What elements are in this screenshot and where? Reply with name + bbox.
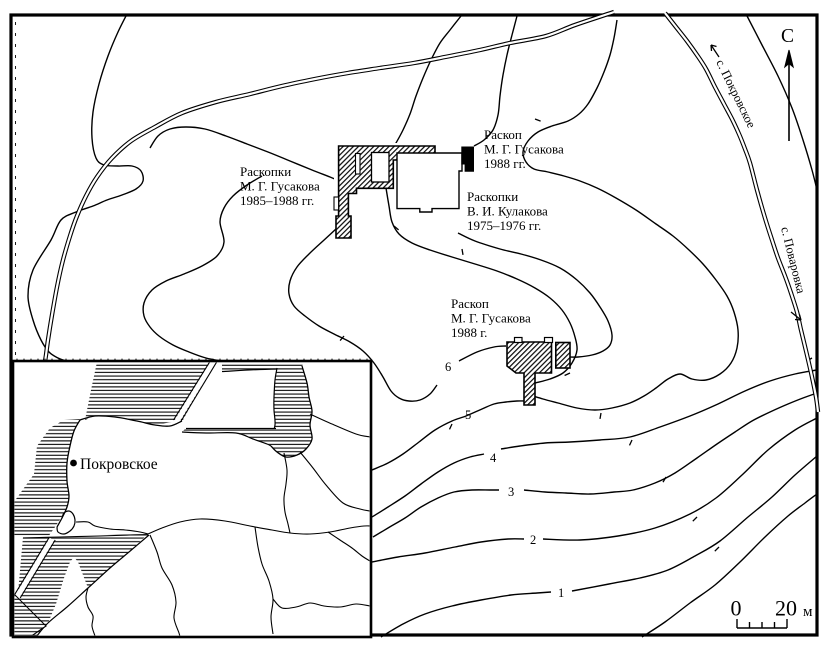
svg-text:1988 гг.: 1988 гг. <box>484 156 526 171</box>
svg-text:20: 20 <box>775 596 797 621</box>
svg-text:Раскопки: Раскопки <box>467 189 518 204</box>
svg-text:С: С <box>781 26 794 47</box>
svg-text:Раскопки: Раскопки <box>240 164 291 179</box>
svg-text:3: 3 <box>508 485 514 499</box>
svg-text:2: 2 <box>530 533 536 547</box>
svg-text:1985–1988 гг.: 1985–1988 гг. <box>240 193 314 208</box>
svg-text:5: 5 <box>465 408 471 422</box>
svg-text:М. Г. Гусакова: М. Г. Гусакова <box>451 311 531 326</box>
svg-text:1988 г.: 1988 г. <box>451 325 487 340</box>
svg-text:В. И. Кулакова: В. И. Кулакова <box>467 204 548 219</box>
svg-text:4: 4 <box>490 451 497 465</box>
svg-text:6: 6 <box>445 360 451 374</box>
svg-text:Раскоп: Раскоп <box>484 127 522 142</box>
svg-text:м: м <box>803 604 813 620</box>
svg-text:0: 0 <box>731 596 742 621</box>
svg-text:1: 1 <box>558 586 564 600</box>
svg-text:1975–1976 гг.: 1975–1976 гг. <box>467 218 541 233</box>
svg-text:М. Г. Гусакова: М. Г. Гусакова <box>240 179 320 194</box>
svg-text:Покровское: Покровское <box>80 456 158 473</box>
svg-text:Раскоп: Раскоп <box>451 296 489 311</box>
svg-text:М. Г. Гусакова: М. Г. Гусакова <box>484 142 564 157</box>
